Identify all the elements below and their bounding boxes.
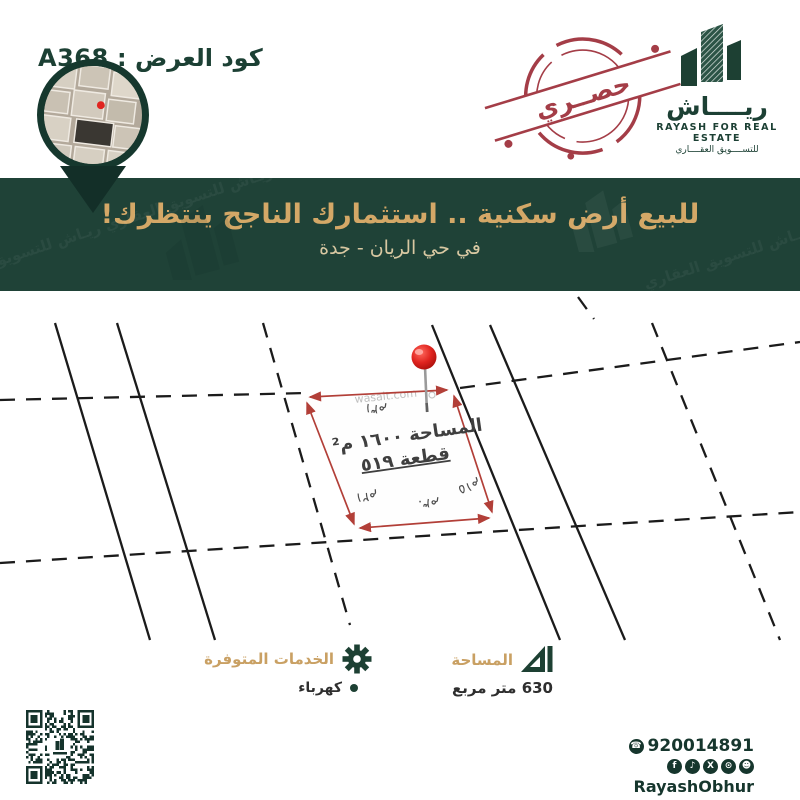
real-estate-flyer: كود العرض : A368 [0, 0, 800, 800]
area-info: المساحة 630 متر مربع [448, 646, 553, 697]
services-info: الخدمات المتوفرة كهرباء [204, 644, 372, 696]
brand-name-arabic: ريــــاش [638, 94, 796, 119]
brand-name-english: RAYASH FOR REAL ESTATE [638, 122, 796, 144]
pin-tail [60, 166, 126, 213]
social-handle: RayashObhur [629, 777, 754, 796]
phone-icon: ☎ [629, 739, 644, 754]
service-item-label: كهرباء [298, 680, 342, 696]
brand-logo: ريــــاش RAYASH FOR REAL ESTATE للتســــ… [638, 22, 796, 155]
dim-left: ٢١م [355, 488, 378, 505]
buildings-icon [669, 22, 765, 86]
dim-bottom: ٣٠م [416, 494, 440, 512]
map-red-dot [97, 101, 105, 109]
dim-top: ٣١م [364, 400, 388, 418]
plot-sketch-map: wasalt.com ٣١م ١٥م ٣٠م ٢١م المساحة ١٦٠٠ … [0, 291, 800, 645]
services-gear-icon [342, 644, 372, 674]
tiktok-icon: ♪ [685, 759, 700, 774]
satellite-image [44, 66, 142, 164]
facebook-icon: f [667, 759, 682, 774]
snapchat-icon: ☻ [739, 759, 754, 774]
social-icons-row: f ♪ X ⊙ ☻ [629, 759, 754, 774]
area-ruler-icon [521, 646, 553, 673]
bullet-dot [350, 684, 358, 692]
service-item: كهرباء [204, 680, 372, 696]
watermark-logo-icon [560, 186, 650, 252]
brand-tagline: للتســــويق العقــــاري [638, 145, 796, 155]
banner-subtitle: في حي الريان - جدة [0, 237, 800, 259]
services-label: الخدمات المتوفرة [204, 650, 334, 668]
phone-number: 920014891 [648, 736, 754, 756]
qr-code [26, 710, 94, 784]
x-twitter-icon: X [703, 759, 718, 774]
phone-row: ☎ 920014891 [629, 736, 754, 756]
instagram-icon: ⊙ [721, 759, 736, 774]
area-value: 630 متر مربع [452, 679, 553, 697]
area-label: المساحة [451, 651, 513, 669]
contact-block: ☎ 920014891 f ♪ X ⊙ ☻ RayashObhur [629, 736, 754, 796]
location-pin-thumbnail [37, 59, 149, 171]
